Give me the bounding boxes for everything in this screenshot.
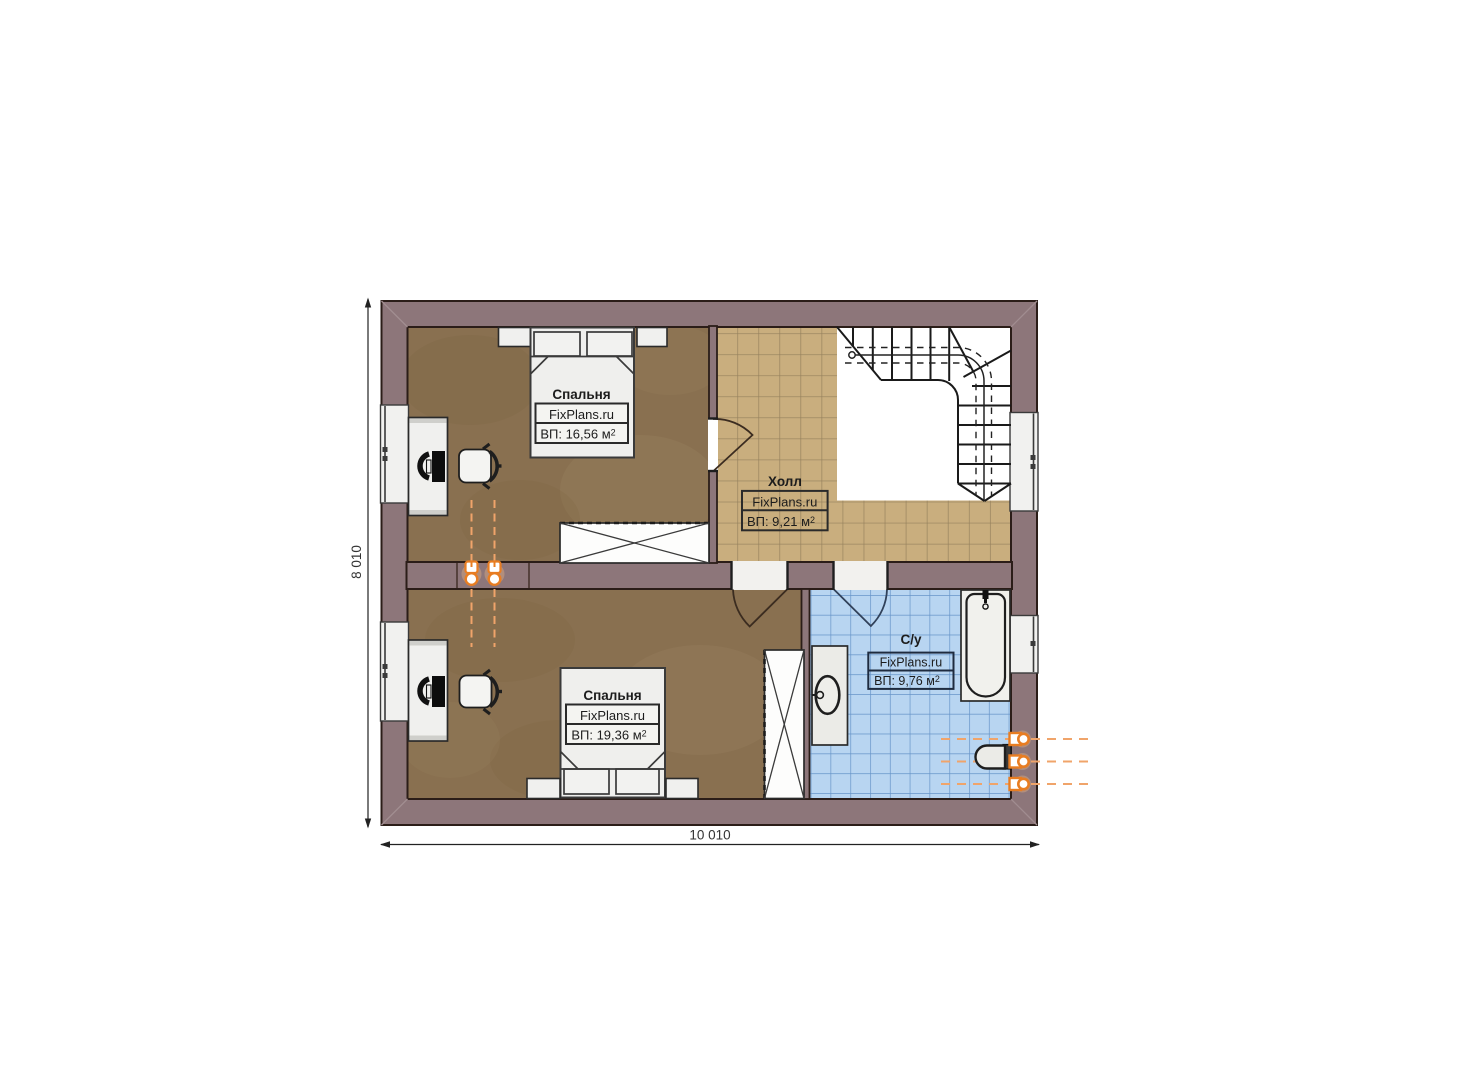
svg-text:8 010: 8 010 (349, 545, 364, 579)
svg-text:ВП: 16,56 м2: ВП: 16,56 м2 (540, 427, 615, 442)
svg-text:ВП: 9,76 м2: ВП: 9,76 м2 (874, 674, 940, 688)
svg-text:FixPlans.ru: FixPlans.ru (580, 708, 645, 723)
svg-text:Спальня: Спальня (583, 688, 641, 703)
svg-text:FixPlans.ru: FixPlans.ru (752, 495, 817, 510)
svg-text:Спальня: Спальня (552, 387, 610, 402)
svg-text:10 010: 10 010 (689, 828, 730, 843)
svg-text:Холл: Холл (768, 474, 802, 489)
svg-text:FixPlans.ru: FixPlans.ru (880, 656, 943, 670)
svg-text:FixPlans.ru: FixPlans.ru (549, 407, 614, 422)
svg-text:С/у: С/у (900, 632, 922, 647)
svg-text:ВП: 19,36 м2: ВП: 19,36 м2 (571, 728, 646, 743)
svg-text:ВП: 9,21 м2: ВП: 9,21 м2 (747, 514, 815, 529)
